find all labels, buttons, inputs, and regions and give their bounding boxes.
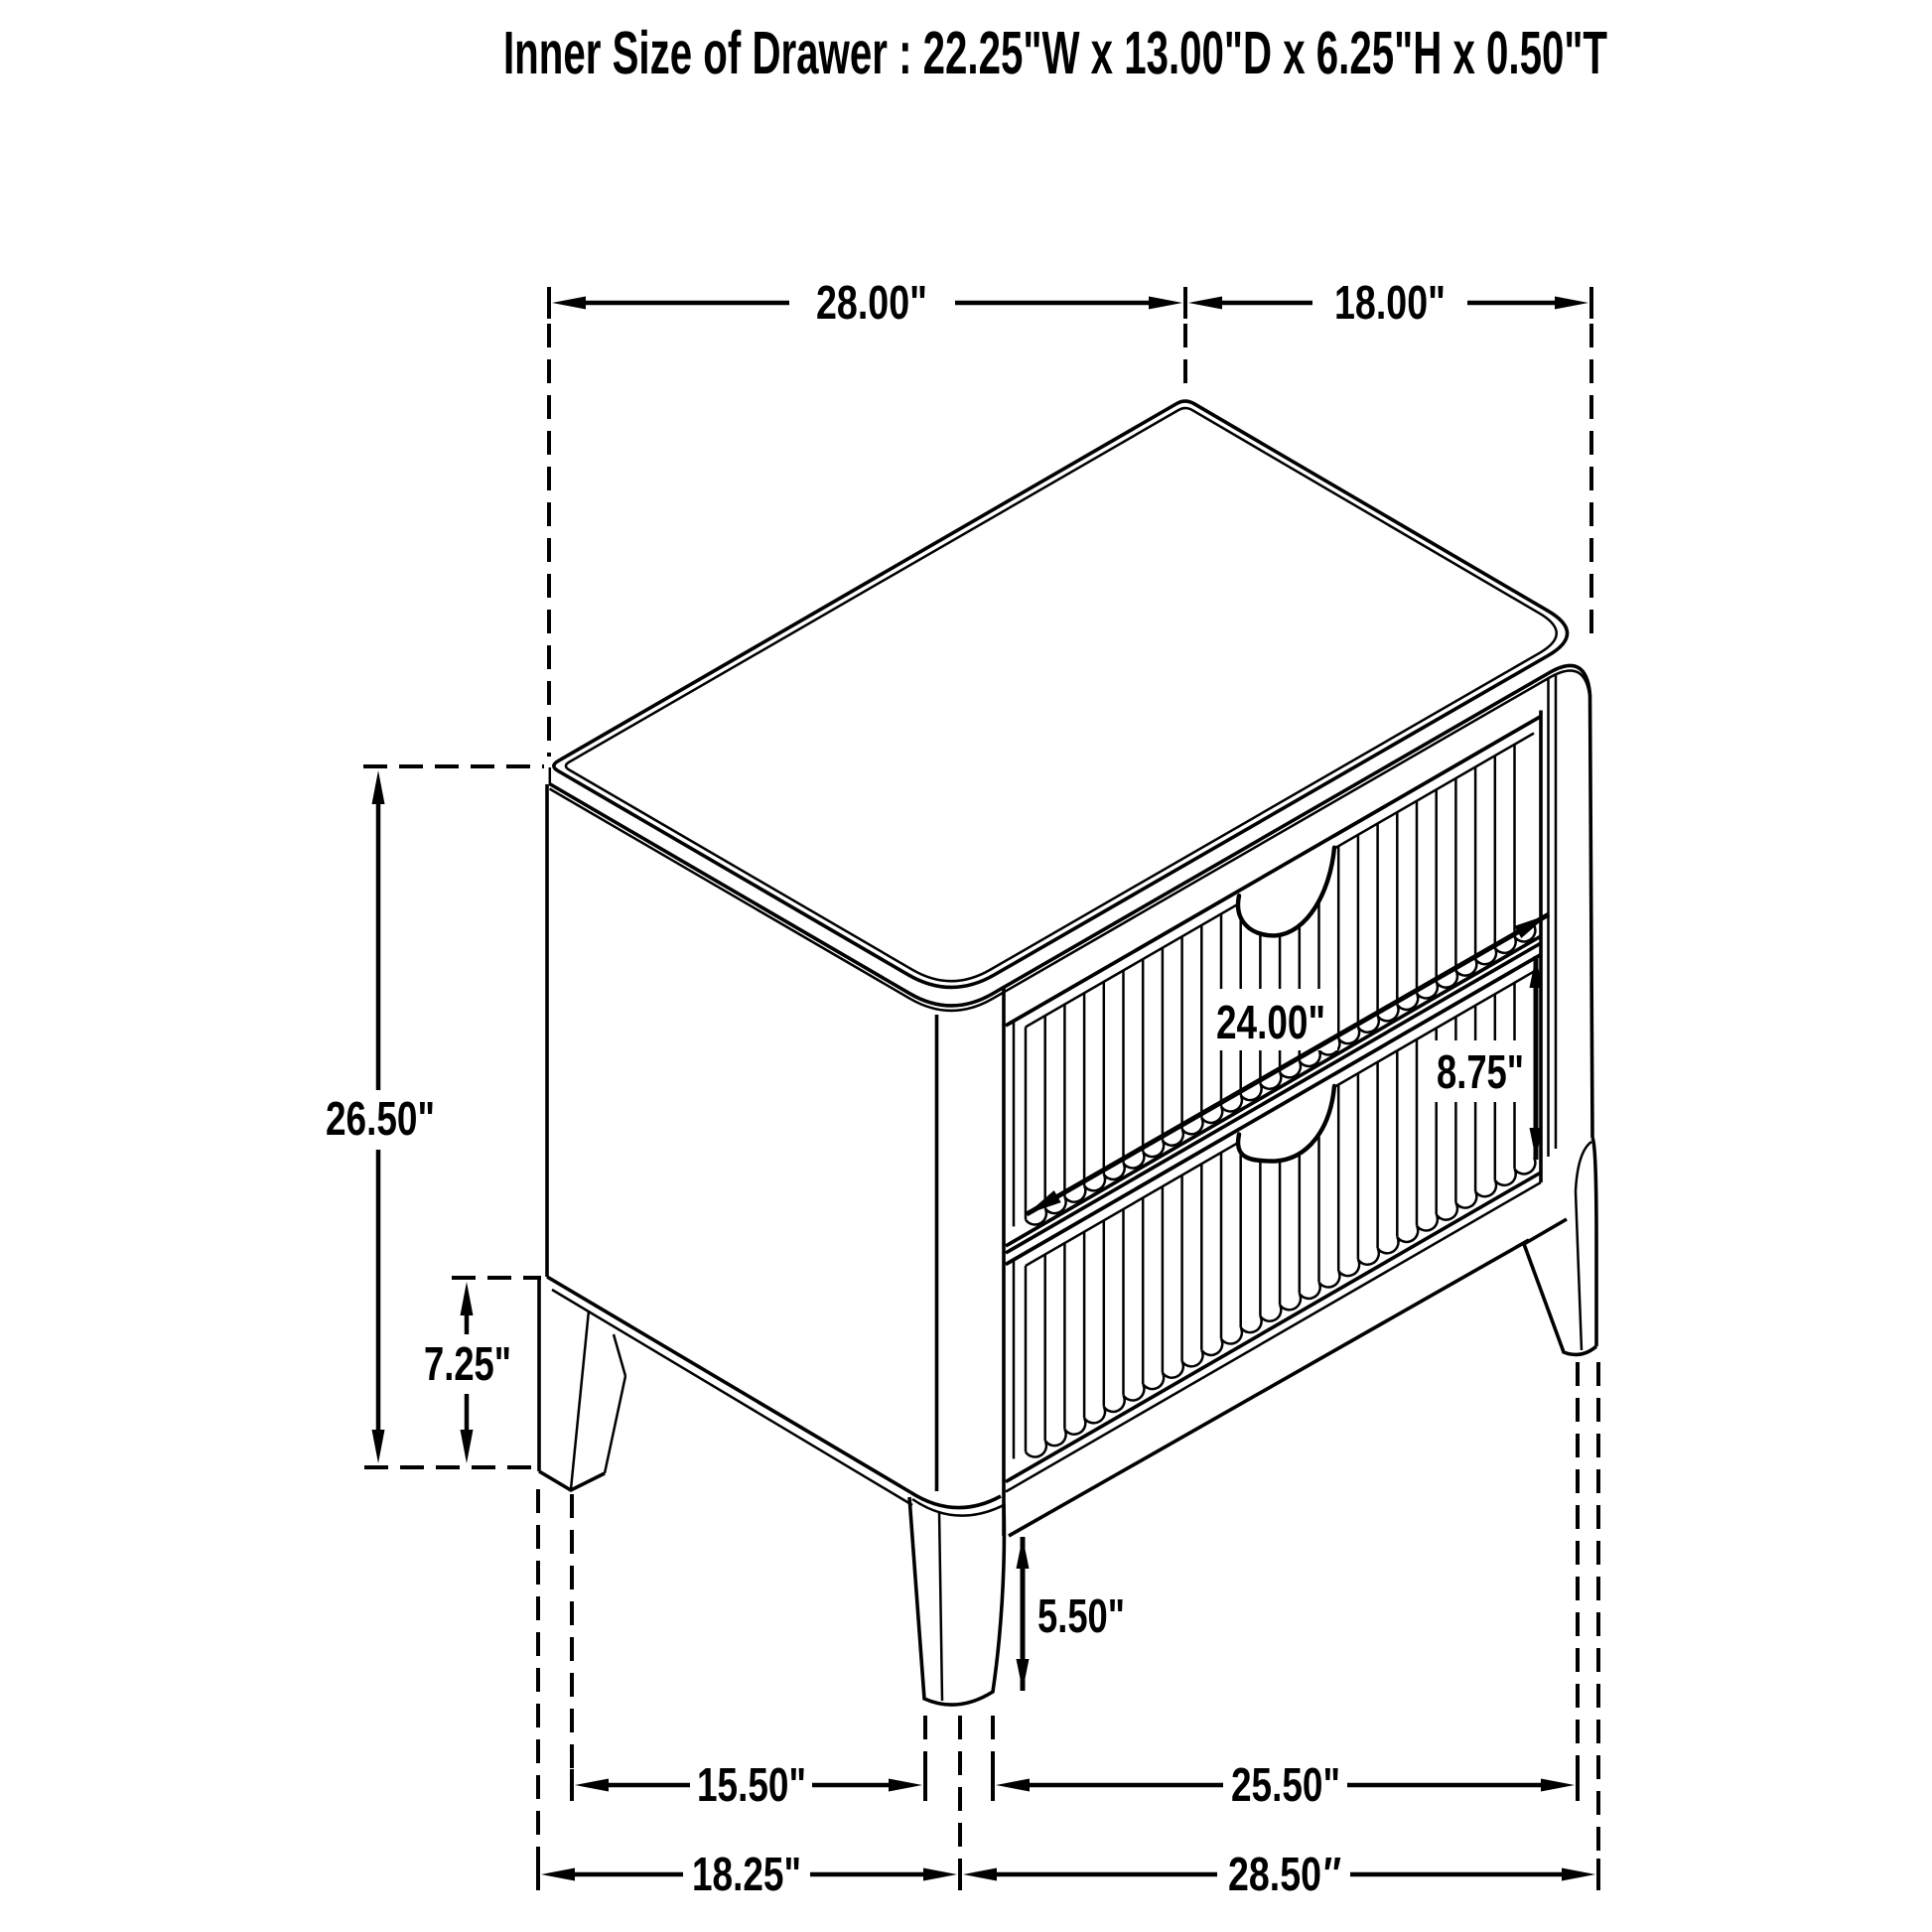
svg-text:26.50": 26.50" (326, 1093, 435, 1146)
svg-text:28.00": 28.00" (816, 277, 927, 330)
svg-text:5.50": 5.50" (1037, 1590, 1125, 1643)
svg-text:25.50": 25.50" (1231, 1759, 1340, 1812)
svg-text:24.00": 24.00" (1216, 997, 1325, 1049)
svg-text:18.25": 18.25" (692, 1849, 801, 1901)
svg-text:7.25": 7.25" (424, 1338, 511, 1391)
svg-text:15.50": 15.50" (697, 1759, 806, 1812)
svg-text:Inner Size of Drawer : 22.25"W: Inner Size of Drawer : 22.25"W x 13.00"D… (503, 19, 1607, 86)
svg-text:18.00": 18.00" (1334, 277, 1446, 330)
svg-text:8.75": 8.75" (1437, 1046, 1524, 1099)
svg-text:28.50″: 28.50″ (1228, 1849, 1341, 1901)
